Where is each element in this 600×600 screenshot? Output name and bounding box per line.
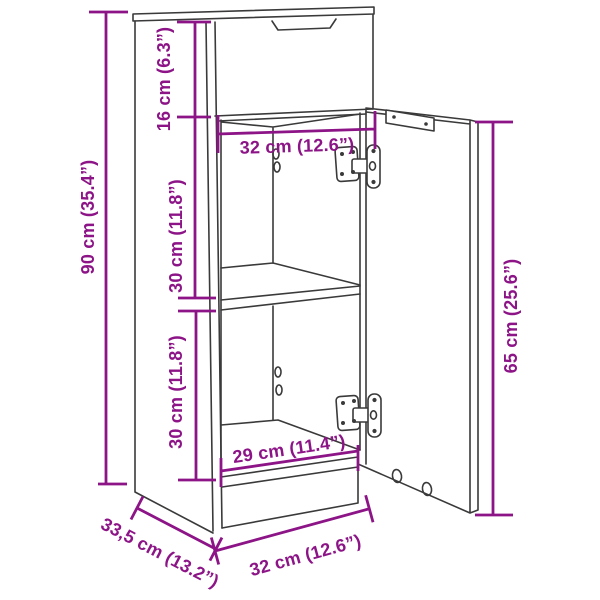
door-holes [391, 469, 432, 496]
dimension-inner-width-bottom: 29 cm (11.4”) [221, 431, 358, 487]
dimensions: 90 cm (35.4”) 16 cm (6.3”) 30 cm (11.8”)… [78, 12, 521, 592]
door-height-label: 65 cm (25.6”) [501, 259, 521, 374]
lower-compartment-label: 30 cm (11.8”) [166, 335, 186, 449]
upper-compartment-label: 30 cm (11.8”) [166, 179, 186, 293]
depth-label: 33,5 cm (13.2”) [98, 514, 223, 592]
inner-width-top-label: 32 cm (12.6”) [239, 134, 354, 158]
dimension-overall-width: 32 cm (12.6”) [211, 495, 379, 587]
dimension-door-height: 65 cm (25.6”) [475, 122, 521, 515]
drawer-handle-recess [272, 19, 336, 30]
shelf [221, 263, 360, 310]
dimension-overall-height: 90 cm (35.4”) [78, 12, 128, 484]
cabinet-dimension-diagram: 90 cm (35.4”) 16 cm (6.3”) 30 cm (11.8”)… [0, 0, 600, 600]
dimension-drawer-height: 16 cm (6.3”) [154, 22, 211, 131]
dimension-lower-compartment: 30 cm (11.8”) [166, 311, 216, 480]
top-panel [133, 7, 374, 21]
product-dimension-image: 90 cm (35.4”) 16 cm (6.3”) 30 cm (11.8”)… [0, 0, 600, 600]
overall-height-label: 90 cm (35.4”) [78, 160, 98, 275]
dimension-depth: 33,5 cm (13.2”) [98, 485, 237, 591]
drawer-height-label: 16 cm (6.3”) [154, 27, 174, 131]
shelf-pin-holes [273, 149, 282, 395]
